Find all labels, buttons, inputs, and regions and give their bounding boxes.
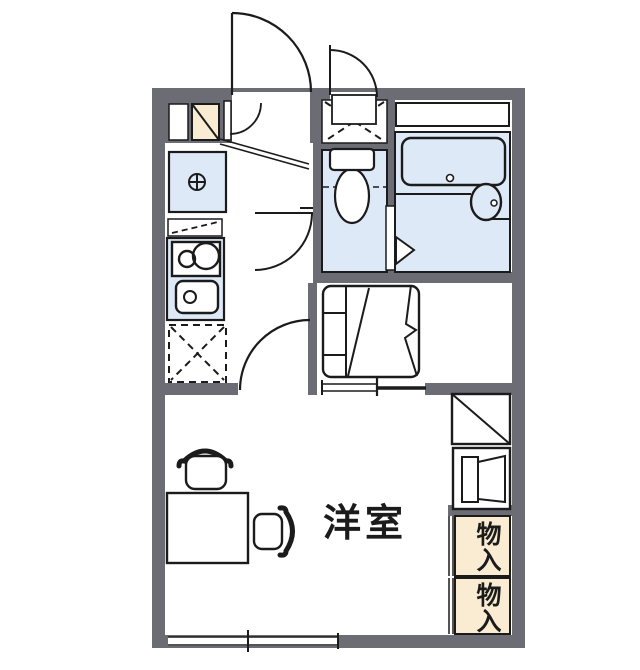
- closet-shelf: [452, 394, 510, 444]
- storage-upper-label: 物入: [466, 520, 500, 574]
- entrance-step-line: [220, 139, 309, 169]
- stair-railing: [322, 378, 426, 396]
- water-heater-cabinet: [453, 448, 510, 509]
- toilet-room: [322, 149, 396, 272]
- desk: [167, 493, 248, 563]
- shoe-cabinet: [192, 104, 219, 140]
- floor-plan: 洋室 物入 物入: [0, 0, 640, 670]
- storage-lower-label: 物入: [466, 582, 500, 634]
- entrance-doorway: [232, 92, 310, 100]
- bath-window: [396, 103, 509, 126]
- bathroom: [395, 103, 510, 272]
- main-room-window: [168, 630, 338, 652]
- entrance-door-swing: [232, 13, 311, 95]
- wall-niche: [169, 104, 188, 140]
- staircase: [323, 285, 419, 377]
- two-burner-stove: [172, 242, 220, 276]
- floor-plan-drawing: [0, 0, 640, 670]
- refrigerator-space: [169, 325, 226, 382]
- kitchen-sink: [176, 281, 218, 313]
- washbasin-faucet: [491, 200, 497, 206]
- chair-right: [254, 508, 293, 555]
- kitchen-unit: [169, 152, 226, 212]
- toilet-bowl: [335, 169, 369, 223]
- bathtub-drain: [447, 175, 454, 182]
- hallway-door-swing: [255, 208, 313, 270]
- washer-door-swing: [330, 45, 377, 124]
- toilet-tank: [330, 149, 374, 170]
- main-room-label: 洋室: [323, 505, 433, 543]
- kitchen-door-swing: [240, 320, 310, 390]
- kitchen-counter: [168, 219, 222, 236]
- chair-top: [179, 451, 231, 489]
- shoe-cabinet-door-swing: [224, 101, 261, 140]
